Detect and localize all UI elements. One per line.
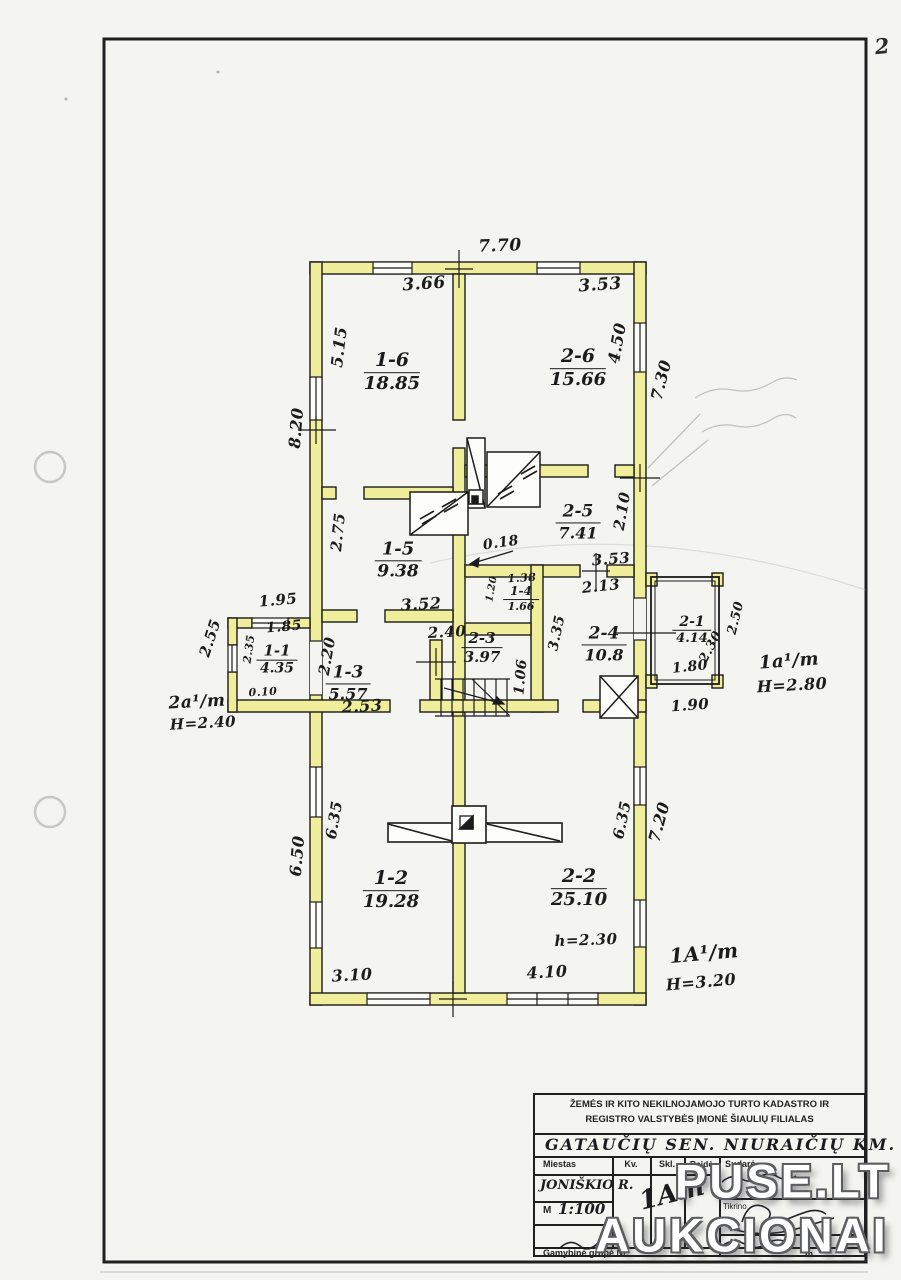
room-label-1-2: 1-2 19.28 xyxy=(363,868,419,912)
dim-w11: 1.85 xyxy=(265,617,302,636)
miestas-entry: JONIŠKIO R. xyxy=(540,1178,633,1193)
room-label-1-5: 1-5 9.38 xyxy=(375,539,422,580)
note-1a1m: 1a¹/m xyxy=(758,648,820,673)
watermark-line2: AUKCIONAI xyxy=(595,1208,888,1263)
org-name-line2: REGISTRO VALSTYBĖS ĮMONĖ ŠIAULIŲ FILIALA… xyxy=(535,1114,864,1125)
room-label-1-1: 1-1 4.35 xyxy=(256,643,297,678)
dim-w14: 1.38 xyxy=(507,571,536,585)
dim-note22: h=2.30 xyxy=(554,930,618,950)
scanned-sheet: 2 1-6 18.85 2-6 15.66 1-5 9.38 2-5 7.41 … xyxy=(0,0,901,1280)
org-name-line1: ŽEMĖS IR KITO NEKILNOJAMOJO TURTO KADAST… xyxy=(535,1099,864,1110)
hole-punch xyxy=(35,452,65,827)
dim-240: 2.40 xyxy=(427,622,466,642)
note-h240: H=2.40 xyxy=(169,712,236,733)
room-label-1-4: 1-4 1.66 xyxy=(503,585,539,613)
flue-x-symbol xyxy=(600,676,638,718)
room-label-2-5: 2-5 7.41 xyxy=(556,502,601,541)
dim-left-lower: 6.50 xyxy=(286,835,308,877)
chimney-symbol xyxy=(388,806,562,843)
dim-w26: 3.53 xyxy=(578,274,623,297)
dim-w15: 3.52 xyxy=(400,593,442,614)
col-header-kv: Kv. xyxy=(612,1159,650,1169)
dim-top11: 1.95 xyxy=(258,589,298,610)
col-header-miestas: Miestas xyxy=(543,1159,576,1169)
watermark-line1: PUSE.LT xyxy=(675,1154,891,1209)
dim-w22: 4.10 xyxy=(526,961,568,982)
room-label-2-4: 2-4 10.8 xyxy=(582,624,627,663)
scale-label: M xyxy=(543,1205,551,1216)
room-label-2-6: 2-6 15.66 xyxy=(550,346,606,390)
room-label-2-3: 2-3 3.97 xyxy=(461,630,502,666)
dim-left-upper: 8.20 xyxy=(285,407,307,449)
note-2a1m: 2a¹/m xyxy=(168,691,226,714)
scan-specks xyxy=(65,71,220,101)
location-entry: GATAUČIŲ SEN. NIURAIČIŲ KM. xyxy=(545,1135,896,1154)
dim-106: 1.06 xyxy=(511,658,530,695)
dim-w13: 2.53 xyxy=(341,695,383,716)
room-label-1-6: 1-6 18.85 xyxy=(364,350,420,394)
page-number: 2 xyxy=(873,33,890,59)
dim-b21: 1.90 xyxy=(670,695,710,716)
dim-010: 0.10 xyxy=(248,685,277,699)
dim-w16: 3.66 xyxy=(402,273,447,296)
dim-w25: 3.53 xyxy=(591,549,631,570)
dim-w12: 3.10 xyxy=(331,964,373,985)
dim-top-total: 7.70 xyxy=(478,235,522,257)
note-h280: H=2.80 xyxy=(756,674,827,697)
room-label-2-2: 2-2 25.10 xyxy=(551,866,607,910)
